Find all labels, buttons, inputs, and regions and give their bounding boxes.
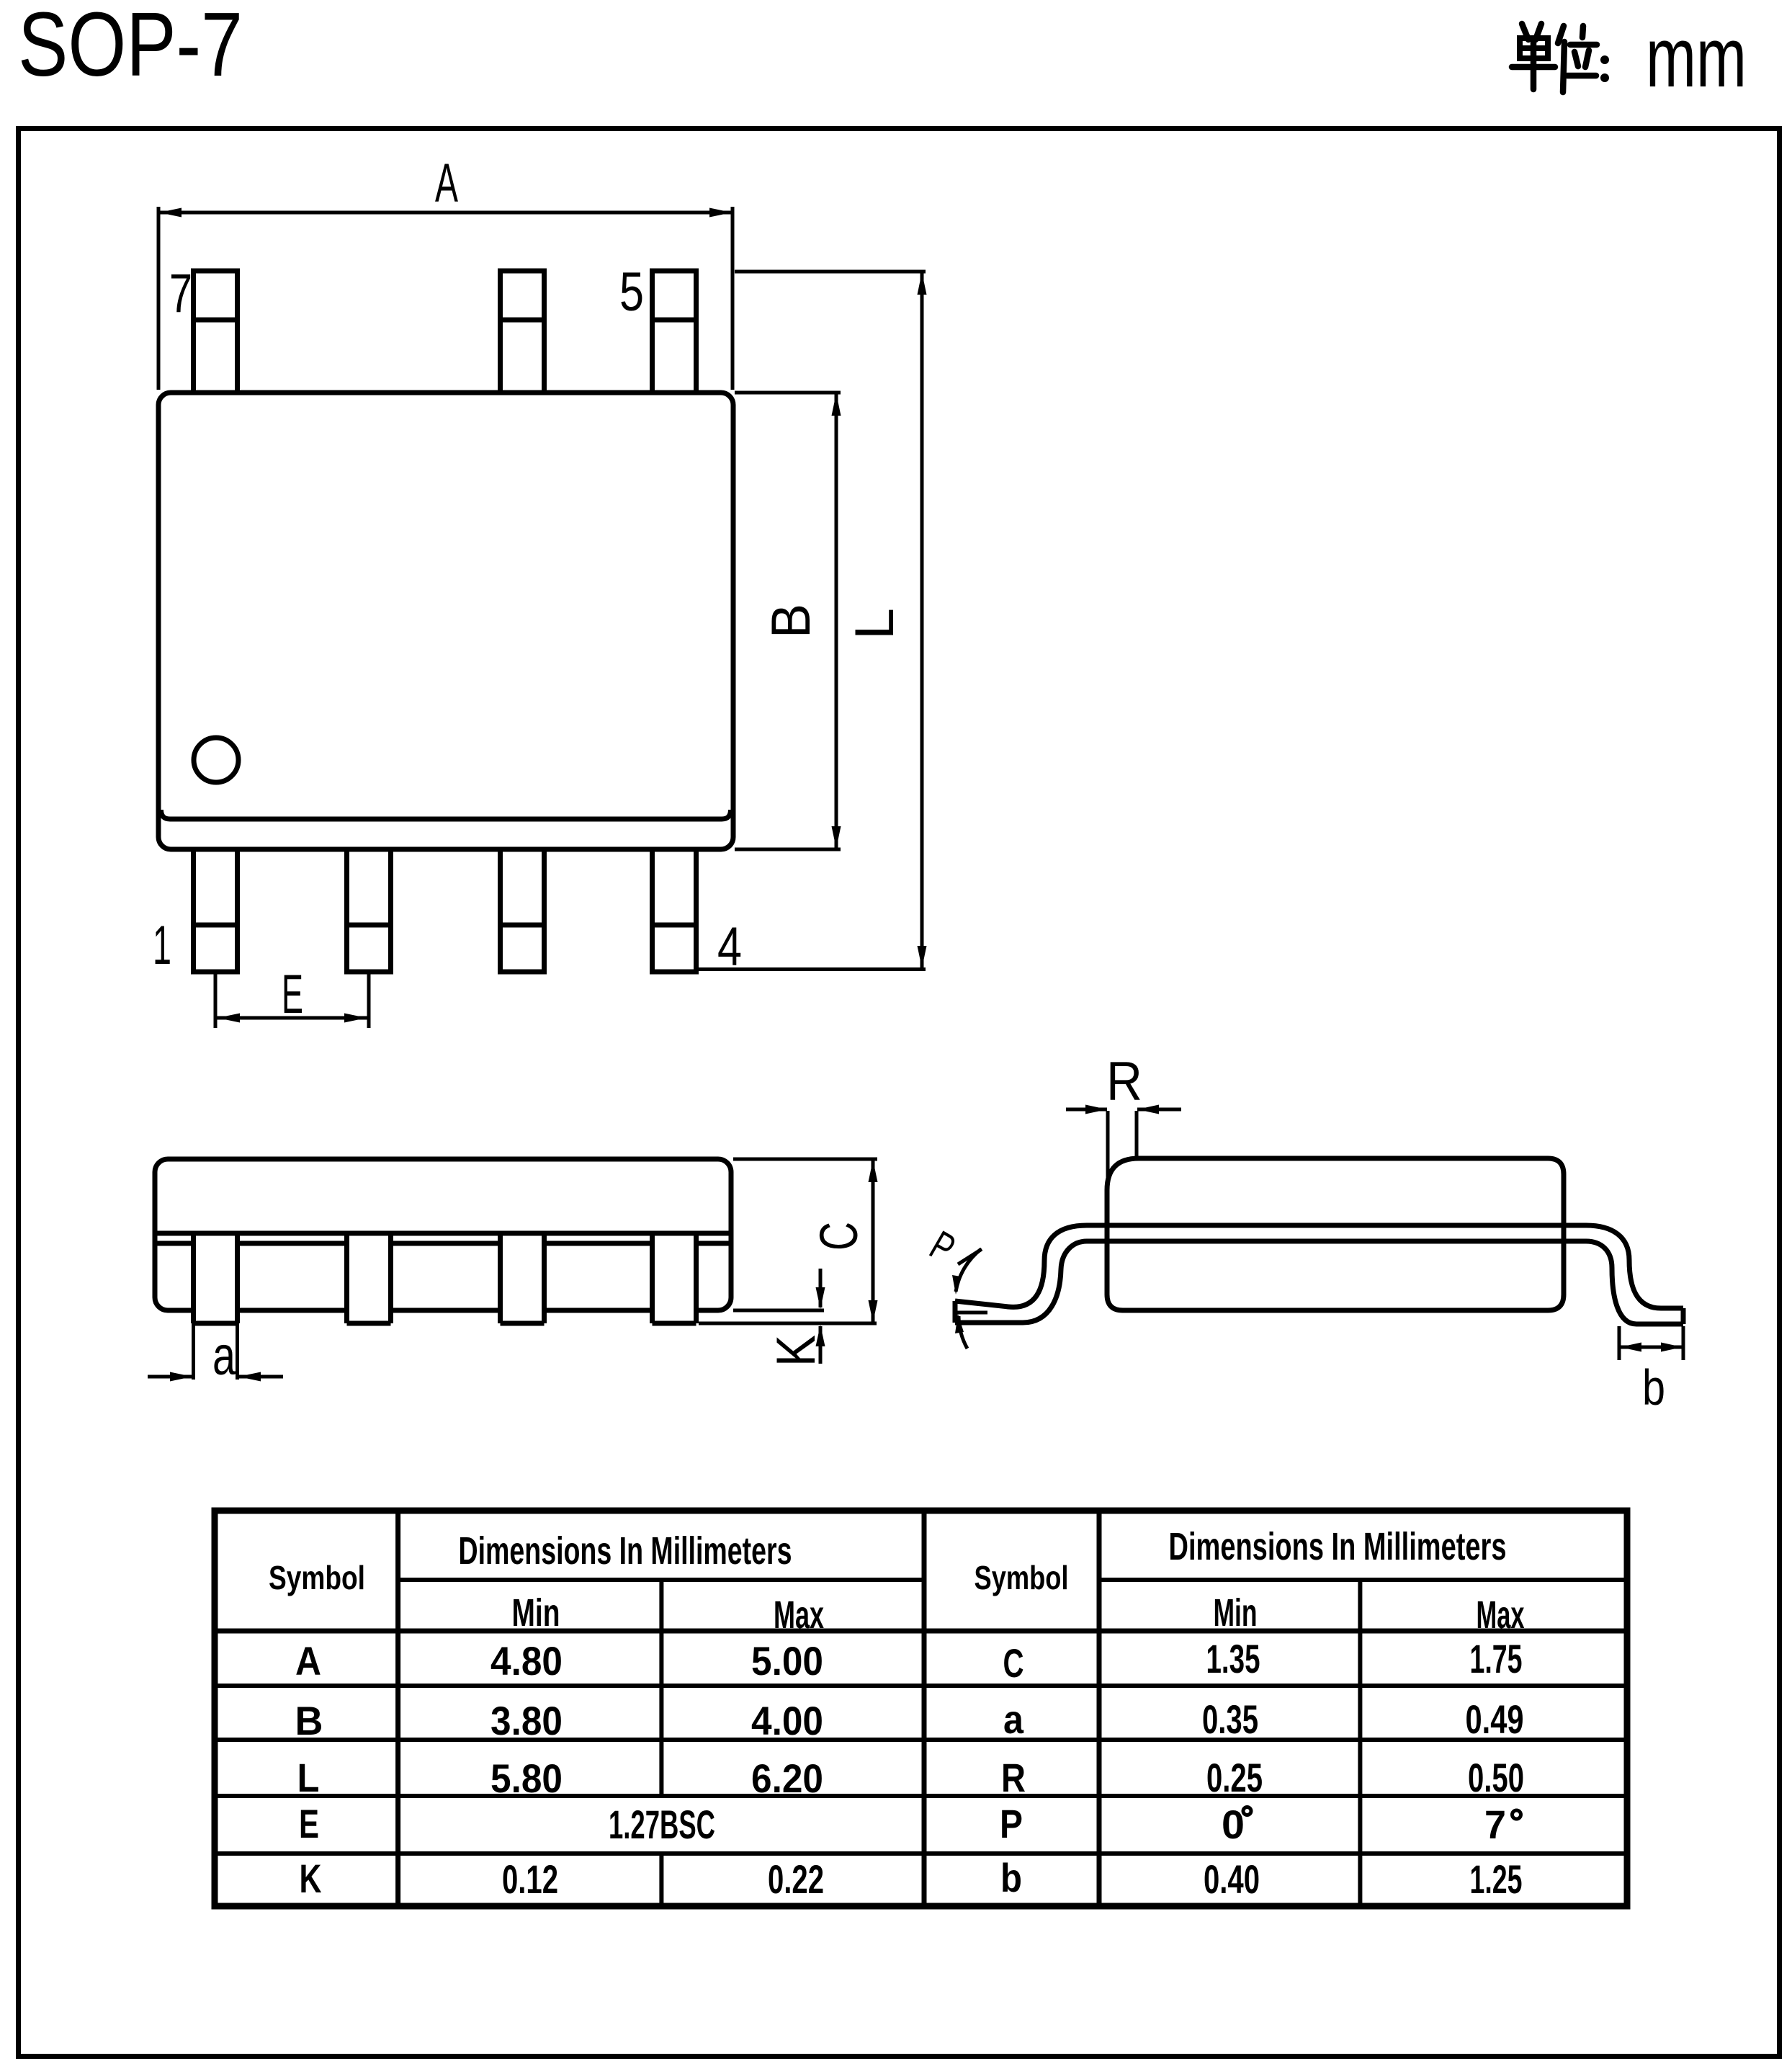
svg-text:B: B (761, 604, 822, 638)
svg-text:E: E (299, 1801, 319, 1846)
svg-text:4.80: 4.80 (490, 1638, 563, 1684)
svg-text:1.35: 1.35 (1206, 1636, 1260, 1681)
svg-text:A: A (435, 153, 458, 214)
svg-text:Max: Max (1477, 1593, 1525, 1637)
svg-text:Symbol: Symbol (975, 1559, 1069, 1596)
svg-text:0.35: 0.35 (1202, 1696, 1258, 1742)
svg-text:6.20: 6.20 (751, 1756, 823, 1801)
svg-text:b: b (1642, 1359, 1665, 1416)
svg-text:R: R (1106, 1051, 1142, 1112)
svg-text:0: 0 (1222, 1802, 1245, 1847)
svg-text:L: L (844, 608, 905, 640)
svg-text:5.00: 5.00 (751, 1638, 823, 1684)
svg-text:1: 1 (153, 915, 171, 976)
svg-text:Max: Max (774, 1593, 824, 1637)
svg-text:5.80: 5.80 (490, 1756, 563, 1801)
svg-text:Min: Min (512, 1591, 560, 1635)
svg-text:0.40: 0.40 (1204, 1856, 1260, 1902)
svg-text:0.12: 0.12 (502, 1856, 558, 1902)
svg-text:a: a (1003, 1696, 1024, 1742)
svg-text:7: 7 (169, 263, 192, 324)
svg-text:L: L (297, 1755, 320, 1800)
svg-text:0.22: 0.22 (768, 1856, 824, 1902)
svg-text:b: b (1000, 1855, 1022, 1900)
svg-text:5: 5 (619, 261, 644, 323)
svg-text:P: P (1000, 1801, 1023, 1846)
svg-text:C: C (809, 1222, 869, 1251)
svg-text:4.00: 4.00 (751, 1698, 823, 1743)
svg-text:E: E (282, 964, 303, 1025)
svg-text:3.80: 3.80 (490, 1698, 563, 1743)
svg-text:0.25: 0.25 (1206, 1755, 1263, 1800)
svg-text:a: a (212, 1325, 236, 1387)
svg-text:1.27BSC: 1.27BSC (609, 1802, 715, 1847)
svg-text:0.50: 0.50 (1468, 1755, 1524, 1800)
svg-text:7: 7 (1484, 1802, 1506, 1847)
svg-text:mm: mm (1646, 10, 1747, 105)
svg-text:C: C (1003, 1640, 1024, 1686)
svg-text:R: R (1001, 1755, 1026, 1800)
svg-text:Symbol: Symbol (269, 1559, 365, 1596)
svg-text:Dimensions In Millimeters: Dimensions In Millimeters (1169, 1525, 1507, 1568)
svg-text:B: B (295, 1698, 323, 1743)
svg-text:A: A (295, 1638, 321, 1684)
svg-text:0.49: 0.49 (1466, 1696, 1524, 1742)
svg-text:SOP-7: SOP-7 (18, 0, 243, 95)
svg-text:1.75: 1.75 (1470, 1636, 1523, 1681)
svg-text:Min: Min (1214, 1591, 1258, 1635)
svg-text:Dimensions In Millimeters: Dimensions In Millimeters (459, 1529, 792, 1573)
svg-text:K: K (300, 1856, 322, 1901)
svg-text:K: K (766, 1335, 827, 1367)
svg-text:1.25: 1.25 (1470, 1856, 1523, 1902)
